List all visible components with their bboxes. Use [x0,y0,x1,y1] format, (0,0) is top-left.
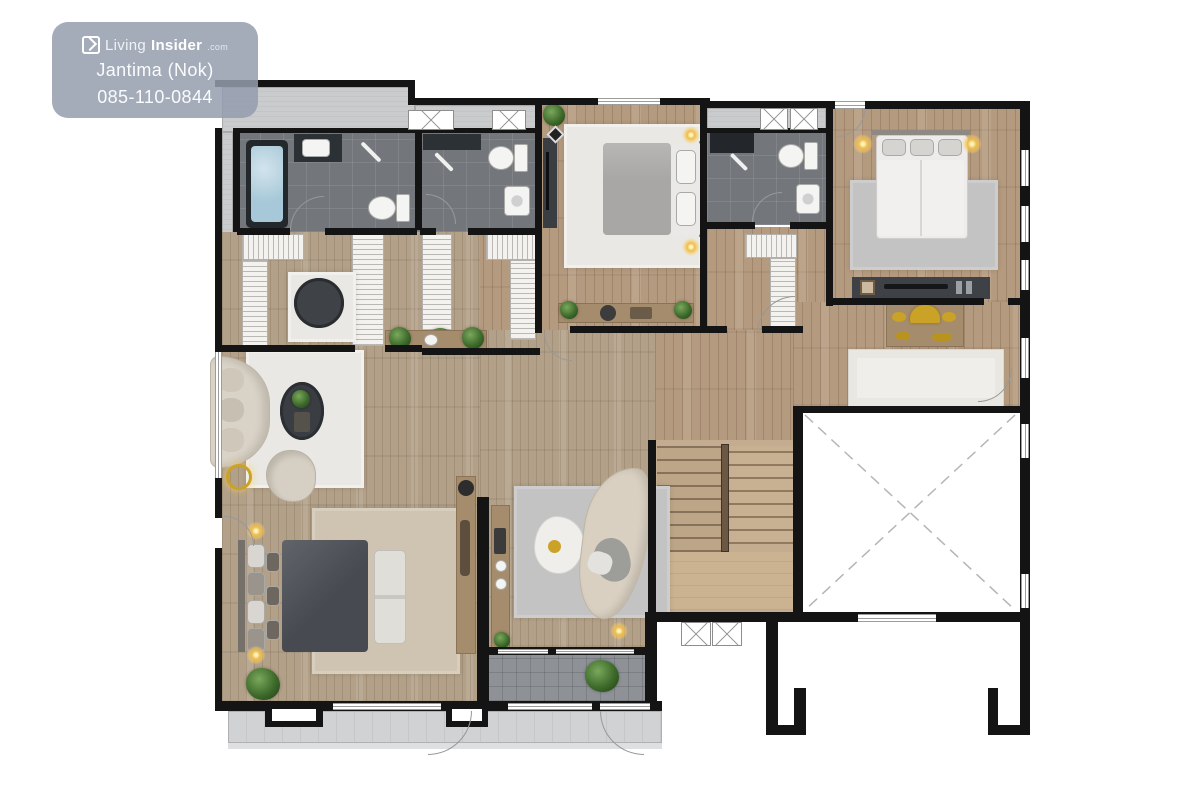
master-bed-pillow [266,552,280,572]
window [1021,206,1029,242]
brand-row: LivingInsider.com [52,36,258,54]
wardrobe-strip [510,260,536,340]
wall-segment [707,222,755,229]
window [1021,338,1029,378]
window [215,352,222,478]
decor-runner [460,520,470,576]
plant [246,668,280,700]
wall-segment [325,228,417,235]
decor-tray [600,305,616,321]
bed3-duvet [878,160,964,236]
vent-box [760,108,788,130]
bay-window-glass [272,709,316,721]
bed3-pillow [910,139,934,156]
wall-segment [420,228,436,235]
stair-railing [721,444,729,552]
sliding-door [600,703,650,710]
wall-segment [645,612,657,711]
wall-segment [707,326,727,333]
void-cross-dashed-lines [803,413,1017,612]
wall-segment [468,228,538,235]
toilet-bowl [488,146,514,170]
wall-sconce-light [682,238,700,256]
wall-segment [215,548,222,711]
sliding-door [508,703,592,710]
wall-sconce-light [682,126,700,144]
agent-name: Jantima (Nok) [52,60,258,81]
toilet-tank [514,144,528,172]
wall-segment [826,298,984,305]
wall-segment [793,413,803,618]
candle-light [610,622,628,640]
wardrobe-strip [352,234,384,346]
brand-living: Living [105,37,146,54]
wall-segment [703,101,830,108]
vent-box [790,108,818,130]
wall-segment [408,98,710,105]
lower-floor-wall-stub [988,725,1030,735]
wall-sconce-light [853,134,873,154]
sliding-door [556,649,634,654]
plant [585,660,619,692]
wall-sconce-light [962,134,982,154]
watermark-badge: LivingInsider.com Jantima (Nok) 085-110-… [52,22,258,118]
gold-bowl [548,540,561,553]
master-bed-pillow [266,620,280,640]
decor-box [630,307,652,319]
wall-segment [648,440,656,612]
window [1021,424,1029,458]
vanity-table [294,278,344,328]
shower-dark-zone [710,133,754,153]
plant [462,327,484,349]
decor-tray [294,412,310,432]
plant [560,301,578,319]
plant [543,104,565,126]
bed3-pillow [882,139,906,156]
altar-gold-decor [896,332,910,340]
decor-bottle [966,281,972,294]
decor-dish [424,334,438,346]
vent-box [681,622,711,646]
decor-dish [495,578,507,590]
window [858,614,936,622]
bed3-pillow [938,139,962,156]
wardrobe-strip [745,234,797,258]
window [1021,260,1029,290]
stair-flight-right [729,446,793,544]
vent-box [492,110,526,130]
wall-segment [648,612,1030,622]
bath-sink [302,139,330,157]
window [598,98,660,105]
altar-gold-decor [942,312,956,322]
toilet-bowl [778,144,804,168]
lower-floor-wall-stub [988,688,998,725]
wall-segment [415,132,422,230]
lower-floor-wall-stub [1020,622,1030,735]
master-bed-pillow [247,544,265,568]
window [1021,150,1029,186]
master-bed-duvet [282,540,368,652]
toilet-tank [396,194,410,222]
decor-frame [860,280,875,295]
wall-segment [222,345,355,352]
plant [674,301,692,319]
wall-segment [477,497,489,701]
tv-screen [884,284,948,289]
wall-segment [700,103,707,333]
sliding-door [333,703,441,710]
living-insider-logo-icon [82,36,100,54]
wall-segment [422,348,540,355]
toilet-bowl [368,196,396,220]
plant [494,632,510,648]
wall-segment [385,345,422,352]
wall-segment [793,406,1030,413]
bathtub-water [251,146,283,222]
decor-dish [495,560,507,572]
master-bed-pillow [266,586,280,606]
bed2-duvet [603,143,671,235]
bed2-pillow [676,150,696,184]
agent-phone: 085-110-0844 [52,87,258,108]
wall-segment [790,222,826,229]
decor-bottle [956,281,962,294]
lower-floor-wall-stub [794,688,806,725]
window [1021,574,1029,608]
toilet-tank [804,142,818,170]
wall-segment [233,132,240,232]
brand-suffix: .com [207,42,228,52]
table-lamp [458,480,474,496]
bed2-pillow [676,192,696,226]
lower-floor-wall-stub [766,622,778,735]
sliding-door [498,649,548,654]
floor-lamp [226,464,252,490]
floorplan-canvas: LivingInsider.com Jantima (Nok) 085-110-… [0,0,1200,800]
wall-segment [826,101,833,306]
wall-segment [535,103,542,333]
tv-screen [546,152,549,210]
altar-gold-decor [932,333,952,341]
vent-box [408,110,454,130]
altar-gold-decor [892,312,906,322]
bed-bench [374,550,406,644]
bath-counter [423,134,481,150]
bath-sink [504,186,530,216]
master-bed-headboard [238,540,245,652]
bath-sink [796,184,820,214]
brand-insider: Insider [151,37,202,54]
lower-floor-wall-stub [766,725,806,735]
wardrobe-strip [242,234,304,260]
master-bed-pillow [247,600,265,624]
wardrobe-strip [242,260,268,348]
plant [292,390,310,408]
armchair [266,450,316,502]
stair-landing [657,552,793,610]
vent-box [712,622,742,646]
master-bed-pillow [247,572,265,596]
wall-sconce-light [246,646,266,664]
wardrobe-strip [486,234,536,260]
wall-segment [237,228,290,235]
decor-books [494,528,506,554]
wall-segment [570,326,707,333]
floor-lounge-terrace [488,655,645,701]
door-opening [835,101,865,109]
